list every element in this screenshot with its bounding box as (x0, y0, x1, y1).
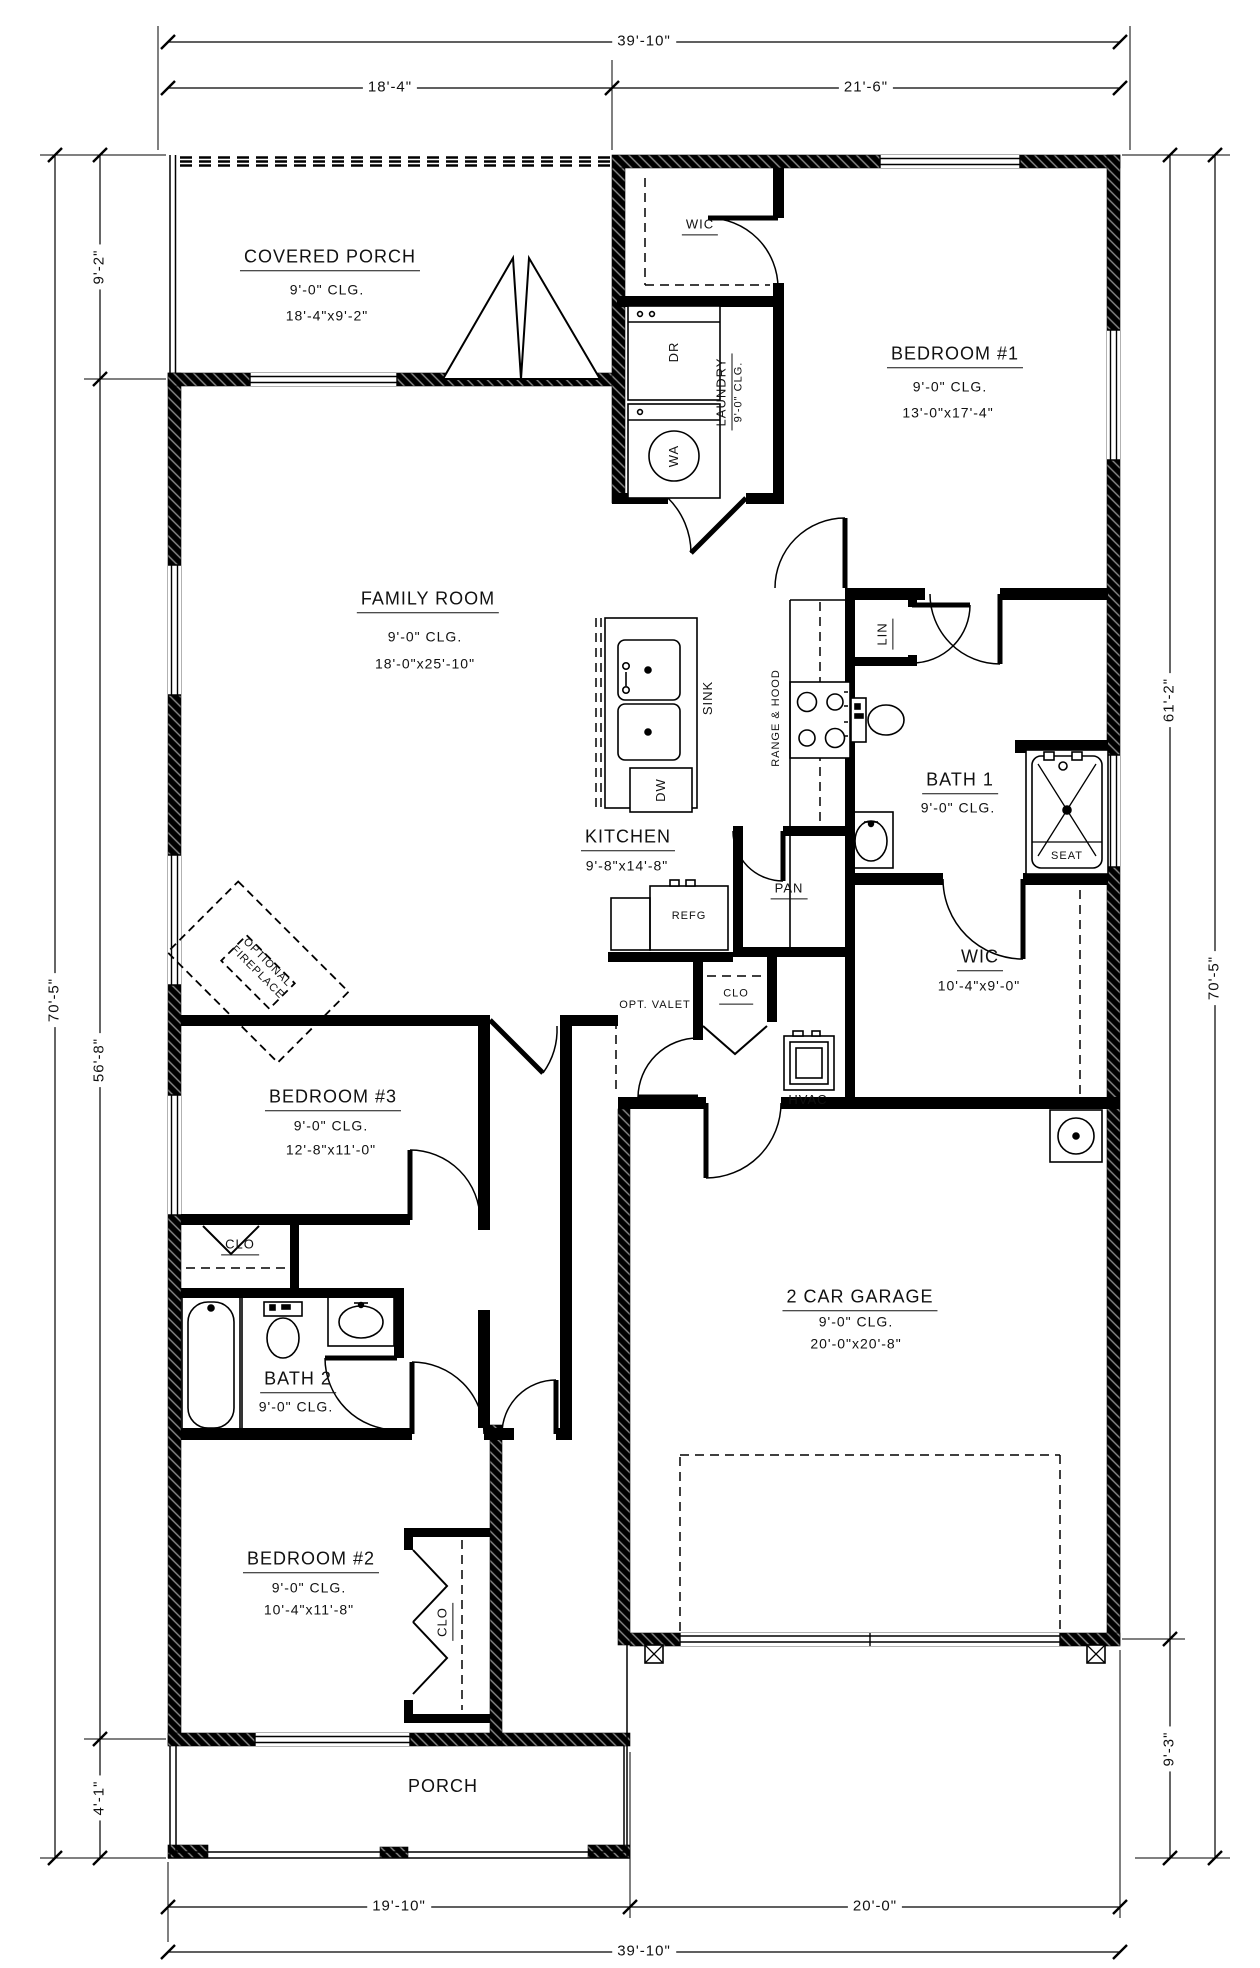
dim-left-overall: 70'-5" (46, 973, 65, 1027)
dim-right-upper: 61'-2" (1161, 673, 1180, 727)
refrigerator-label: REFG (672, 910, 707, 924)
pantry-title: PAN (771, 880, 808, 899)
clo-bed3-title: CLO (221, 1236, 259, 1255)
dim-top-right: 21'-6" (839, 79, 893, 98)
linen-title: LIN (874, 618, 893, 649)
kitchen-title: KITCHEN (581, 825, 675, 851)
washer-label: WA (666, 445, 682, 467)
wic-master-size: 10'-4"x9'-0" (938, 977, 1021, 995)
dim-bottom-right: 20'-0" (848, 1898, 902, 1917)
dim-top-left: 18'-4" (363, 79, 417, 98)
wic-master-title: WIC (957, 945, 1003, 971)
range-fixture (790, 682, 850, 758)
dim-left-lower: 4'-1" (91, 1776, 110, 1821)
window-right-bedroom1 (1107, 330, 1120, 460)
hvac-label: HVAC (788, 1092, 827, 1108)
window-left-family-2 (168, 855, 181, 985)
kitchen-size: 9'-8"x14'-8" (586, 857, 669, 875)
family-room-size: 18'-0"x25'-10" (375, 655, 475, 673)
porch-title: PORCH (408, 1775, 478, 1798)
dryer-label: DR (666, 342, 682, 363)
covered-porch-size: 18'-4"x9'-2" (286, 307, 369, 325)
bedroom2-size: 10'-4"x11'-8" (264, 1601, 354, 1619)
window-right-bath1 (1107, 755, 1120, 867)
garage-post-right (1087, 1645, 1105, 1663)
porch-screens (168, 155, 630, 1858)
dim-left-porch: 9'-2" (91, 245, 110, 290)
garage-post-left (645, 1645, 663, 1663)
window-porch-family (250, 373, 397, 386)
bath1-clg: 9'-0" CLG. (921, 799, 995, 817)
window-bedroom2 (255, 1733, 410, 1746)
dim-bottom-overall: 39'-10" (612, 1943, 676, 1962)
garage-clg: 9'-0" CLG. (819, 1313, 893, 1331)
garage-title: 2 CAR GARAGE (782, 1285, 937, 1311)
floorplan-page: 39'-10" 18'-4" 21'-6" 9'-2" 70'-5" 56'-8… (0, 0, 1260, 1968)
floorplan-drawing (0, 0, 1260, 1968)
covered-porch-clg: 9'-0" CLG. (290, 281, 364, 299)
refrigerator-fixture (611, 880, 728, 950)
toilet-bath2-fixture (264, 1302, 302, 1358)
dim-bottom-left: 19'-10" (367, 1898, 431, 1917)
dim-top-overall: 39'-10" (612, 33, 676, 52)
bedroom2-title: BEDROOM #2 (243, 1547, 379, 1573)
opt-valet-label: OPT. VALET (619, 999, 691, 1013)
sink-label: SINK (700, 681, 716, 715)
dim-left-main: 56'-8" (91, 1033, 110, 1087)
window-top-bedroom1 (880, 155, 1020, 168)
bedroom2-clg: 9'-0" CLG. (272, 1579, 346, 1597)
family-room-clg: 9'-0" CLG. (388, 628, 462, 646)
covered-porch-title: COVERED PORCH (240, 245, 420, 271)
bedroom1-title: BEDROOM #1 (887, 342, 1023, 368)
bath2-title: BATH 2 (260, 1367, 336, 1393)
clo-bed2-title: CLO (434, 1603, 453, 1641)
tub-bath2-fixture (182, 1296, 242, 1434)
laundry-title-block: LAUNDRY 9'-0" CLG. (714, 354, 747, 431)
kitchen-island (605, 618, 697, 812)
bedroom3-size: 12'-8"x11'-0" (286, 1141, 376, 1159)
seat-label: SEAT (1051, 850, 1083, 864)
hvac-fixture (784, 1031, 834, 1090)
family-room-title: FAMILY ROOM (357, 587, 499, 613)
bedroom3-clg: 9'-0" CLG. (294, 1117, 368, 1135)
laundry-clg: 9'-0" CLG. (733, 354, 747, 431)
bedroom1-clg: 9'-0" CLG. (913, 378, 987, 396)
bedroom3-title: BEDROOM #3 (265, 1085, 401, 1111)
toilet-bath1-fixture (851, 698, 904, 742)
french-doors (443, 258, 600, 379)
window-left-family-1 (168, 565, 181, 695)
garage-size: 20'-0"x20'-8" (810, 1335, 901, 1353)
wic-bed1-title: WIC (682, 216, 718, 235)
vanity-bath2-fixture (328, 1296, 394, 1346)
water-heater-fixture (1050, 1110, 1102, 1162)
window-left-bedroom3 (168, 1095, 181, 1215)
garage-door-opening (680, 1633, 1060, 1646)
dim-right-overall: 70'-5" (1206, 951, 1225, 1005)
clo-hall-title: CLO (719, 988, 753, 1005)
vanity-bath1-fixture (849, 812, 893, 868)
bedroom1-size: 13'-0"x17'-4" (902, 404, 993, 422)
dim-right-lower: 9'-3" (1161, 1727, 1180, 1772)
dishwasher-label: DW (653, 778, 669, 802)
range-hood-label: RANGE & HOOD (770, 669, 784, 767)
laundry-title: LAUNDRY (714, 354, 733, 431)
bath1-title: BATH 1 (922, 768, 998, 794)
bath2-clg: 9'-0" CLG. (259, 1398, 333, 1416)
